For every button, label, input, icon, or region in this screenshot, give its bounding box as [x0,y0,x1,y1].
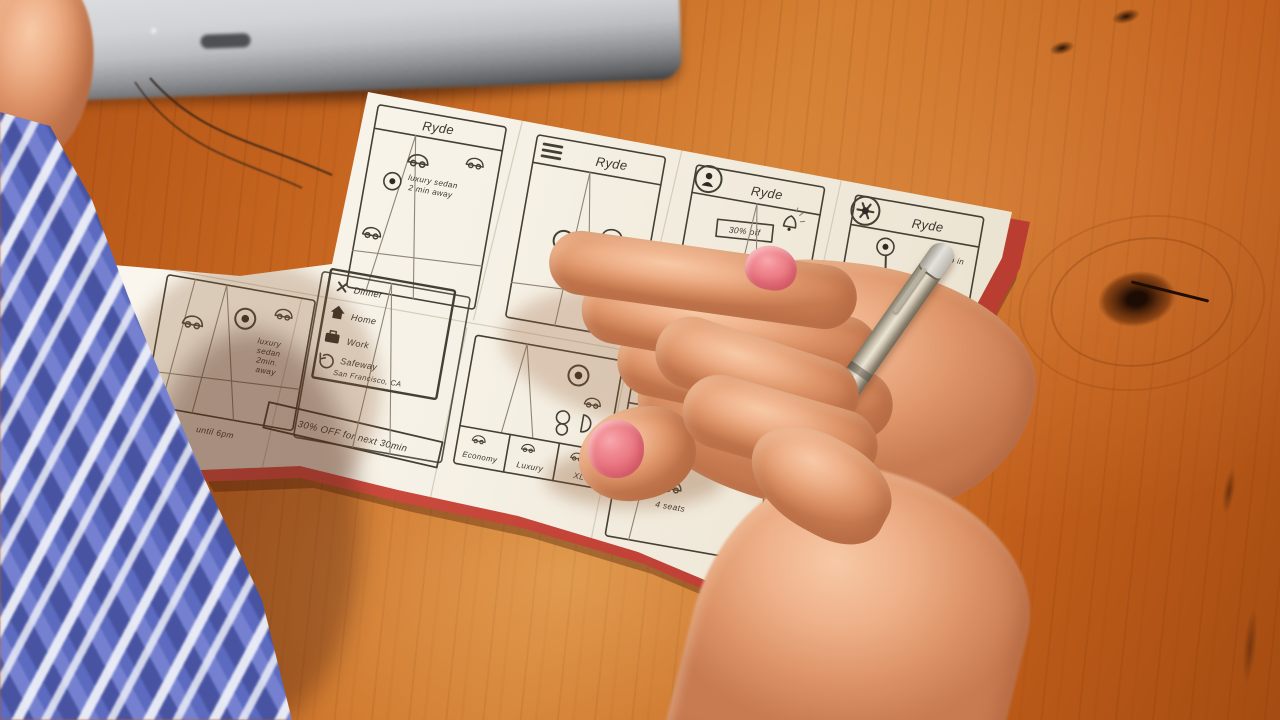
map-annotation: luxury sedan 2 min away [406,173,461,201]
app-title: Ryde [421,118,455,137]
tab-luxury: Luxury [516,460,545,474]
app-title: Ryde [595,154,629,173]
avatar-circle [555,423,568,436]
avatar-circle [555,410,570,425]
laptop-hinge-slot [200,33,250,49]
car-icon [472,435,486,445]
pink-thumbnail [588,420,644,478]
gear-icon [856,203,874,219]
car-icon [407,153,429,168]
location-pin-icon [876,237,896,257]
app-title: Ryde [750,183,784,202]
phone-frame [346,105,506,310]
car-icon [466,157,484,170]
app-title: Ryde [911,216,945,235]
promo-badge: 30% off [716,219,773,242]
close-icon [338,282,347,291]
wireframe-frame-1: Ryde luxury sedan 2 min away [346,105,506,310]
person-icon [702,172,716,187]
list-item: Dinner [353,285,384,300]
laptop-sleep-led [151,28,156,33]
photo-scene: Ryde luxury sedan 2 min away [0,0,1280,720]
tab-economy: Economy [462,450,499,465]
car-icon [362,226,382,239]
car-icon [521,443,535,453]
menu-icon [542,144,562,159]
